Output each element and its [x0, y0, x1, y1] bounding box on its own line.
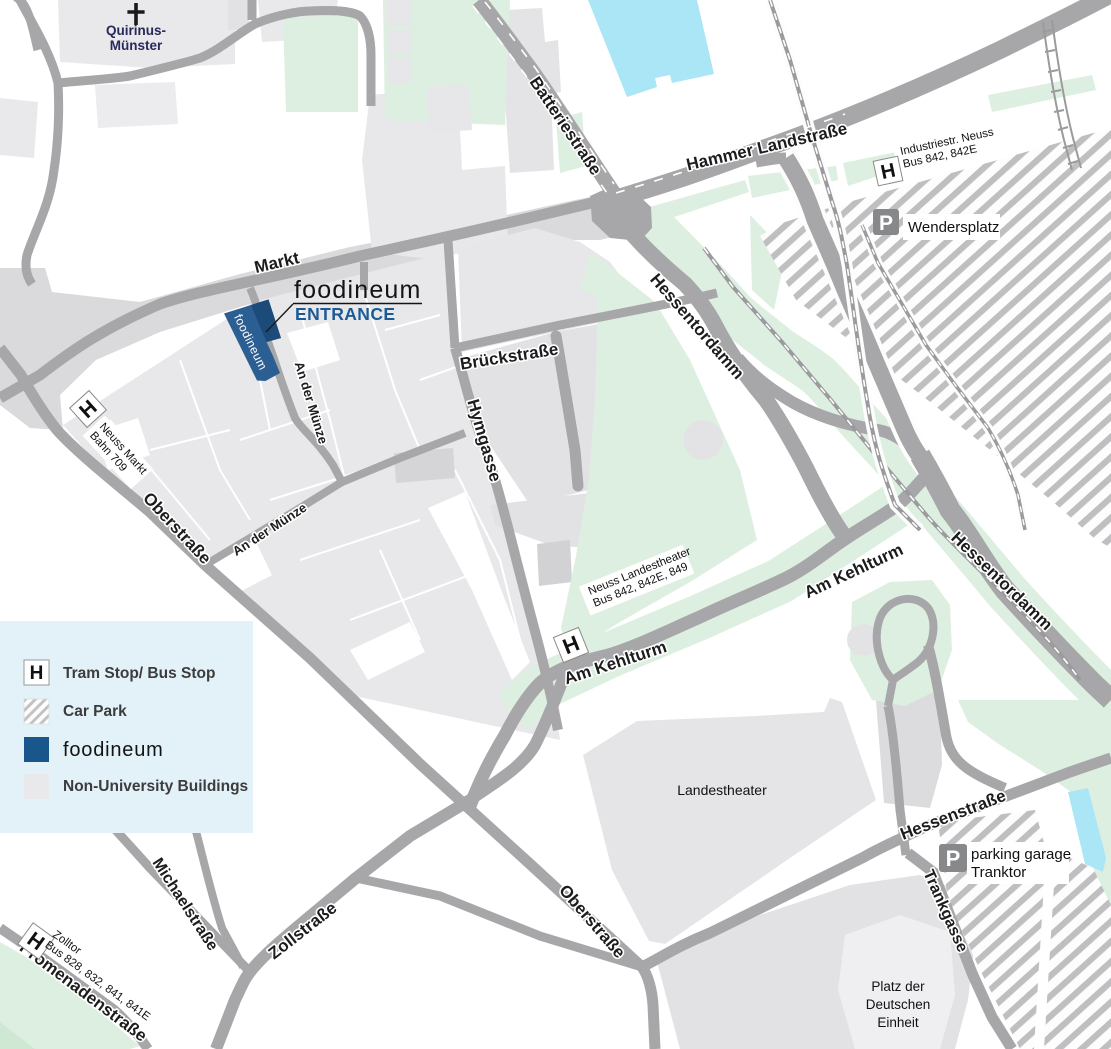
svg-text:H: H — [30, 663, 44, 684]
svg-text:ENTRANCE: ENTRANCE — [295, 304, 395, 324]
svg-text:Platz der: Platz der — [871, 979, 925, 994]
svg-text:Tram Stop/ Bus Stop: Tram Stop/ Bus Stop — [63, 665, 215, 682]
svg-text:Quirinus-: Quirinus- — [106, 23, 166, 38]
svg-text:Münster: Münster — [110, 38, 163, 53]
svg-text:Landestheater: Landestheater — [677, 782, 767, 798]
svg-text:Wendersplatz: Wendersplatz — [908, 219, 999, 236]
svg-text:Tranktor: Tranktor — [971, 864, 1026, 881]
svg-text:foodineum: foodineum — [294, 276, 422, 304]
svg-text:Car Park: Car Park — [63, 703, 127, 720]
svg-text:P: P — [946, 846, 961, 871]
svg-text:Deutschen: Deutschen — [866, 997, 931, 1012]
svg-text:P: P — [879, 212, 893, 235]
svg-text:Non-University Buildings: Non-University Buildings — [63, 778, 248, 795]
svg-text:parking garage: parking garage — [971, 846, 1071, 863]
svg-text:Einheit: Einheit — [877, 1015, 919, 1030]
svg-text:foodineum: foodineum — [63, 739, 164, 761]
